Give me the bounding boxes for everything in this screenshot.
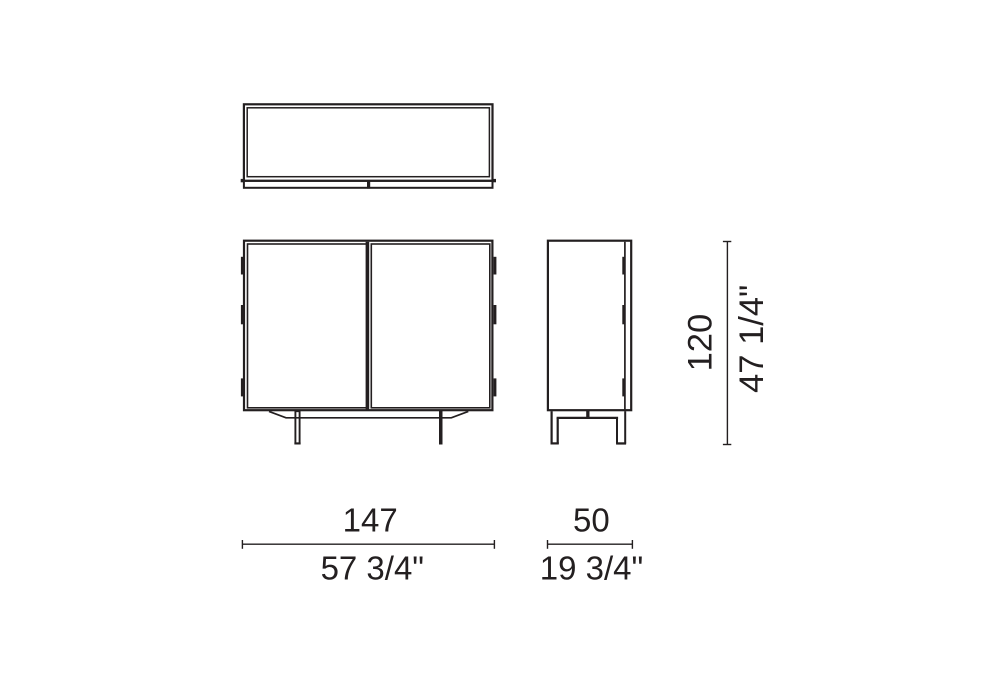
svg-text:147: 147: [343, 501, 398, 538]
svg-text:19 3/4": 19 3/4": [540, 549, 643, 586]
svg-text:47 1/4": 47 1/4": [733, 285, 771, 393]
svg-text:120: 120: [682, 314, 720, 372]
svg-text:57 3/4": 57 3/4": [321, 549, 424, 586]
svg-text:50: 50: [573, 501, 610, 538]
